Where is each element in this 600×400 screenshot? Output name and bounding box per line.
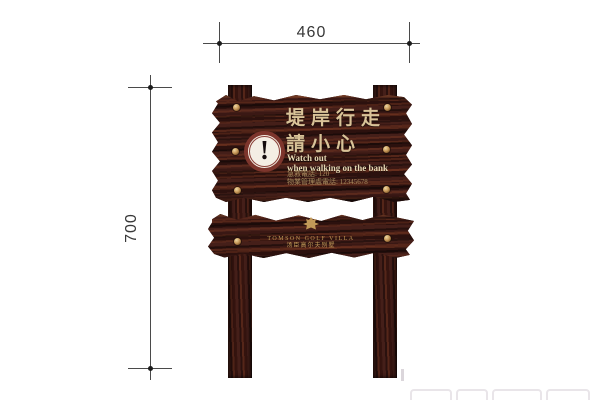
- dimension-dot: [148, 85, 153, 90]
- brand-logo: TOMSON GOLF VILLA 汤臣高尔夫别墅: [208, 217, 414, 250]
- exclamation-glyph: !: [260, 137, 269, 164]
- warning-exclamation-icon: !: [244, 131, 285, 172]
- watermark-glyph: [410, 389, 452, 400]
- rivet-stud: [383, 146, 390, 153]
- rivet-stud: [234, 187, 241, 194]
- sign-info: 急救電話: 120 物業管理處電話: 12345678: [287, 171, 417, 186]
- dimension-dot: [148, 366, 153, 371]
- rivet-stud: [383, 186, 390, 193]
- rivet-stud: [384, 104, 391, 111]
- management-phone-line: 物業管理處電話: 12345678: [287, 179, 417, 187]
- watermark-glyph: [492, 389, 542, 400]
- watermark-glyph: [546, 389, 590, 400]
- rivet-stud: [233, 104, 240, 111]
- watermark-glyph: [456, 389, 488, 400]
- dimension-width-label: 460: [203, 24, 420, 42]
- rivet-stud: [232, 148, 239, 155]
- crest-icon: [303, 217, 319, 231]
- dimension-line: [150, 75, 151, 380]
- signage-design-drawing: 460 700 ! 堤岸行走 請小心 Watch out when walkin…: [0, 0, 600, 400]
- dimension-line: [203, 43, 420, 44]
- watermark-mark: [401, 369, 404, 381]
- rivet-stud: [234, 238, 241, 245]
- rivet-stud: [384, 235, 391, 242]
- dimension-height-label: 700: [116, 210, 148, 246]
